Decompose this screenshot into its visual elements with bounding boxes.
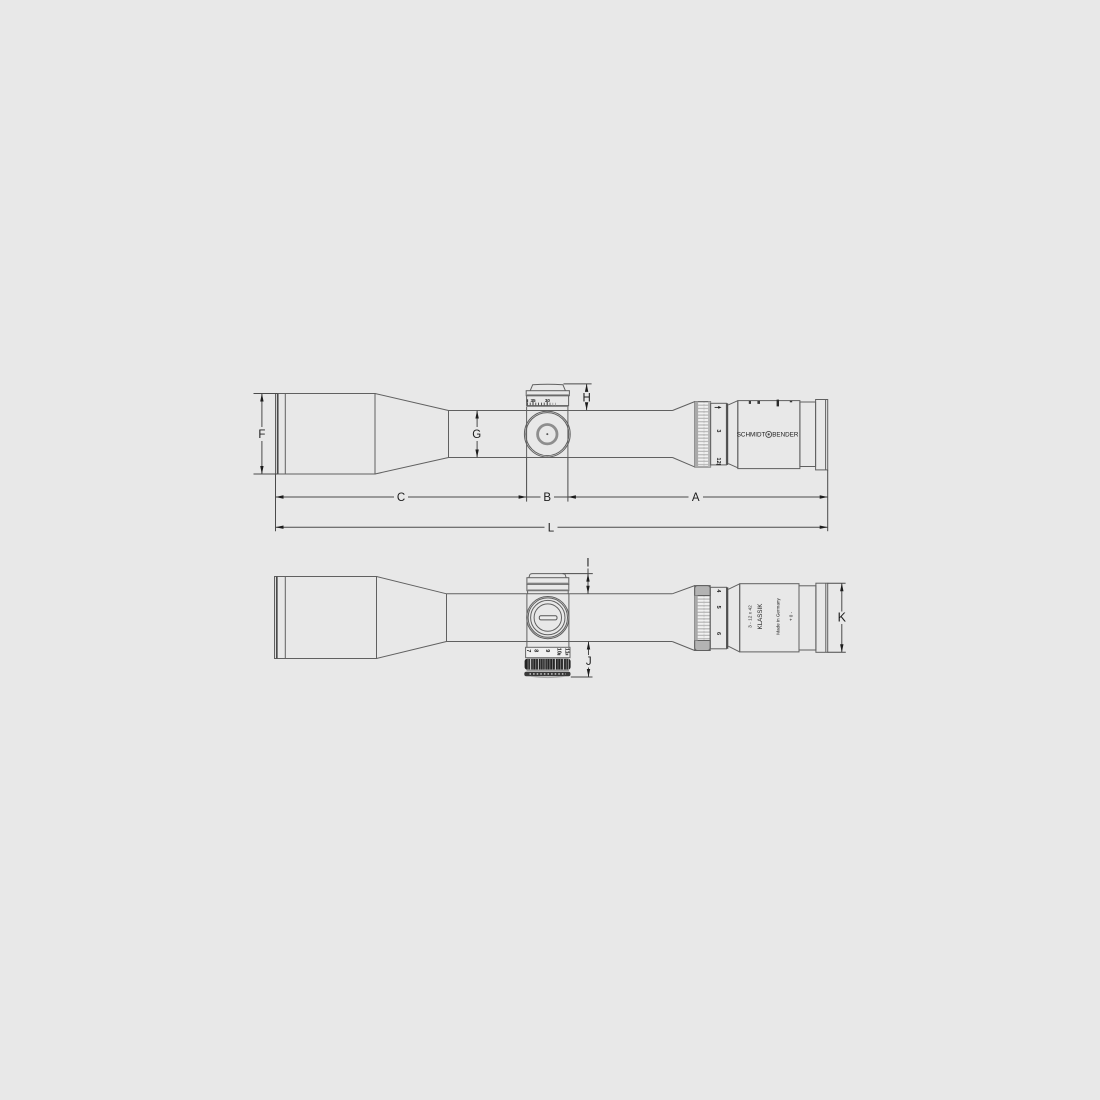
svg-text:C: C	[397, 492, 405, 504]
svg-text:10: 10	[555, 648, 561, 654]
svg-text:L: L	[548, 522, 555, 534]
svg-text:BENDER: BENDER	[772, 432, 799, 439]
svg-text:A: A	[692, 492, 700, 504]
svg-text:6: 6	[715, 632, 721, 635]
svg-text:35: 35	[530, 398, 536, 403]
svg-text:5: 5	[715, 606, 721, 609]
svg-text:I: I	[586, 558, 589, 570]
svg-text:+ 0 -: + 0 -	[789, 611, 794, 621]
svg-text:Made in Germany: Made in Germany	[775, 598, 780, 635]
svg-text:B: B	[543, 492, 551, 504]
svg-text:KLASSIK: KLASSIK	[757, 603, 764, 630]
svg-text:SCHMIDT: SCHMIDT	[737, 432, 766, 439]
svg-text:7: 7	[525, 649, 531, 652]
svg-text:8: 8	[533, 649, 539, 652]
svg-text:3 - 12 x 42: 3 - 12 x 42	[748, 605, 754, 628]
svg-text:G: G	[472, 429, 481, 441]
svg-text:H: H	[582, 392, 590, 404]
svg-text:30: 30	[545, 398, 551, 403]
svg-text:9: 9	[544, 649, 550, 652]
svg-text:K: K	[838, 611, 847, 625]
svg-text:F: F	[258, 429, 265, 441]
svg-text:11: 11	[563, 648, 569, 654]
svg-text:J: J	[586, 656, 592, 668]
svg-text:12: 12	[715, 458, 721, 464]
svg-text:3: 3	[715, 429, 721, 432]
